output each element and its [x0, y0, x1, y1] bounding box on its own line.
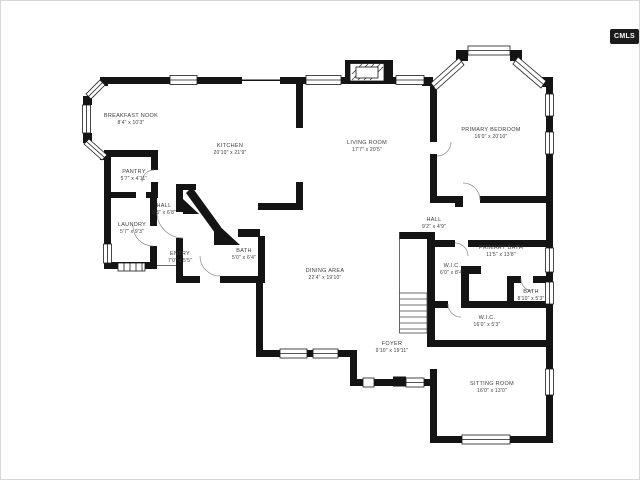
room-name: FOYER [376, 341, 409, 348]
room-label: FOYER9'10" x 19'11" [376, 341, 409, 355]
room-dimensions: 3'3" x 6'8" [152, 210, 176, 217]
room-name: W.I.C. [473, 315, 500, 322]
room-label: BREAKFAST NOOK8'4" x 10'3" [104, 113, 158, 127]
room-label: DINING AREA22'4" x 19'10" [306, 268, 345, 282]
room-dimensions: 17'7" x 20'5" [347, 147, 387, 154]
room-dimensions: 16'0" x 20'10" [461, 134, 520, 141]
room-name: BATH [517, 289, 544, 296]
room-name: HALL [422, 217, 446, 224]
floor-plan-drawing [0, 0, 640, 480]
room-label: PRIMARY BEDROOM16'0" x 20'10" [461, 127, 520, 141]
room-label: ENTRY7'0" x 5'5" [168, 251, 192, 265]
door-arcs [133, 142, 533, 317]
room-dimensions: 20'10" x 21'9" [213, 150, 246, 157]
room-label: PRIMARY BATH11'5" x 13'8" [479, 245, 523, 259]
diagonal-walls [183, 187, 240, 245]
room-dimensions: 5'7" x 9'3" [118, 229, 146, 236]
room-label: PANTRY5'7" x 4'11" [121, 169, 148, 183]
room-name: DINING AREA [306, 268, 345, 275]
room-dimensions: 16'0" x 13'0" [470, 388, 514, 395]
floor-plan-canvas: BREAKFAST NOOK8'4" x 10'3"KITCHEN20'10" … [0, 0, 640, 480]
room-dimensions: 5'0" x 6'4" [232, 255, 256, 262]
room-label: HALL9'2" x 4'9" [422, 217, 446, 231]
room-name: HALL [152, 203, 176, 210]
room-label: W.I.C.6'0" x 8'4" [440, 263, 464, 277]
room-name: W.I.C. [440, 263, 464, 270]
room-label: W.I.C.16'0" x 5'3" [473, 315, 500, 329]
room-dimensions: 16'0" x 5'3" [473, 322, 500, 329]
room-dimensions: 9'2" x 4'9" [422, 224, 446, 231]
room-name: PANTRY [121, 169, 148, 176]
room-dimensions: 22'4" x 19'10" [306, 275, 345, 282]
room-name: PRIMARY BATH [479, 245, 523, 252]
room-dimensions: 8'4" x 10'3" [104, 120, 158, 127]
room-label: BATH8'10" x 5'3" [517, 289, 544, 303]
room-dimensions: 9'10" x 19'11" [376, 348, 409, 355]
fireplace [345, 60, 393, 84]
room-name: KITCHEN [213, 143, 246, 150]
room-dimensions: 11'5" x 13'8" [479, 252, 523, 259]
room-dimensions: 8'10" x 5'3" [517, 296, 544, 303]
stairs [400, 232, 428, 333]
room-dimensions: 6'0" x 8'4" [440, 270, 464, 277]
room-label: SITTING ROOM16'0" x 13'0" [470, 381, 514, 395]
room-name: SITTING ROOM [470, 381, 514, 388]
room-name: LAUNDRY [118, 222, 146, 229]
room-name: ENTRY [168, 251, 192, 258]
room-dimensions: 7'0" x 5'5" [168, 258, 192, 265]
room-name: PRIMARY BEDROOM [461, 127, 520, 134]
room-name: BREAKFAST NOOK [104, 113, 158, 120]
room-label: HALL3'3" x 6'8" [152, 203, 176, 217]
cmls-logo: CMLS [610, 29, 639, 44]
room-label: LIVING ROOM17'7" x 20'5" [347, 140, 387, 154]
room-name: BATH [232, 248, 256, 255]
room-label: LAUNDRY5'7" x 9'3" [118, 222, 146, 236]
room-dimensions: 5'7" x 4'11" [121, 176, 148, 183]
room-label: KITCHEN20'10" x 21'9" [213, 143, 246, 157]
room-name: LIVING ROOM [347, 140, 387, 147]
room-label: BATH5'0" x 6'4" [232, 248, 256, 262]
